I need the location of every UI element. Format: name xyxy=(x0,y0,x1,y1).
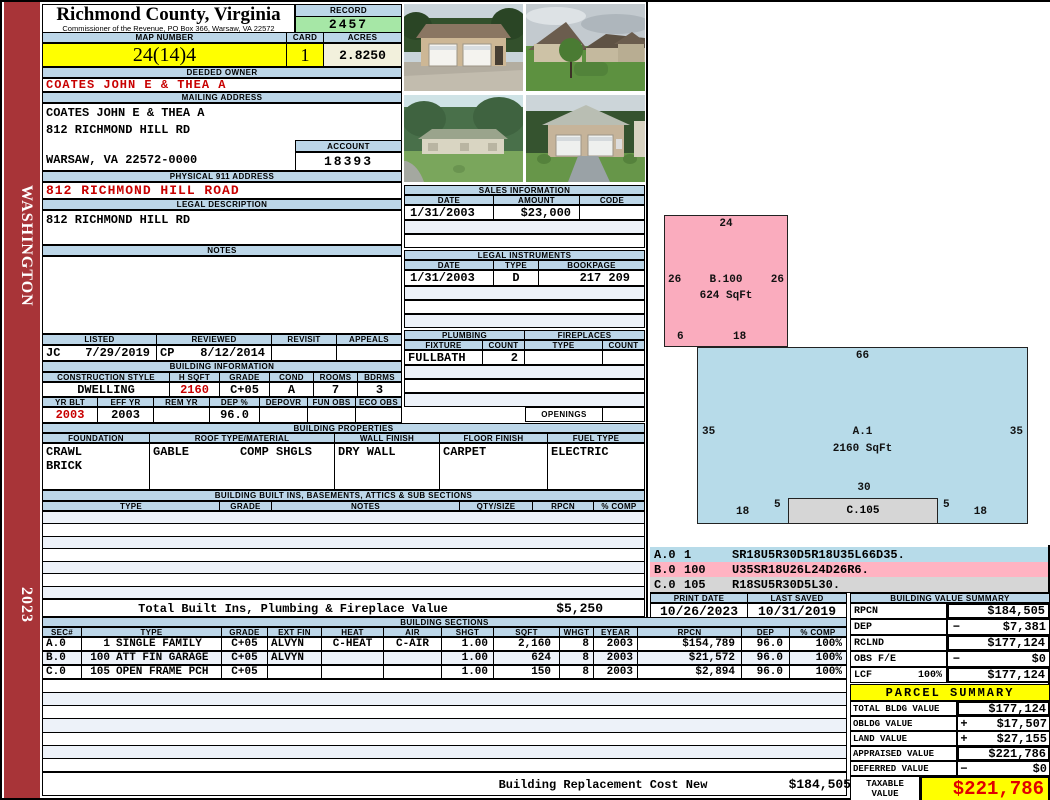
code-b-num: 100 xyxy=(684,563,732,577)
listed-date: 7/29/2019 xyxy=(85,346,150,360)
code-a-sec: A.0 xyxy=(650,548,684,562)
deeded-owner-value: COATES JOHN E & THEA A xyxy=(42,78,402,92)
total-bldg-label: TOTAL BLDG VALUE xyxy=(850,701,957,716)
fireplaces-label: FIREPLACES xyxy=(525,330,645,340)
code-b-sec: B.0 xyxy=(650,563,684,577)
row-c-rpcn: $2,894 xyxy=(638,665,742,679)
deferred-sign: − xyxy=(958,762,970,776)
construction-style-value: DWELLING xyxy=(42,382,170,397)
sketch-a-dim-inner: 30 xyxy=(789,482,939,494)
code-c-sec: C.0 xyxy=(650,578,684,592)
section-row-a: A.0 1SINGLE FAMILY C+05 ALVYN C-HEAT C-A… xyxy=(42,637,847,651)
bvs-dep-label: DEP xyxy=(850,619,947,635)
deferred-label: DEFERRED VALUE xyxy=(850,761,957,776)
wall-finish-value: DRY WALL xyxy=(335,443,440,490)
li-date-label: DATE xyxy=(404,260,494,270)
openings-label: OPENINGS xyxy=(525,407,603,422)
sale-amount: $23,000 xyxy=(494,205,580,220)
row-c-whgt: 8 xyxy=(560,665,594,679)
obldg-sign: + xyxy=(958,717,970,731)
sketch-b-dim-bc: 18 xyxy=(733,331,746,343)
roof-material-value: COMP SHGLS xyxy=(240,445,312,459)
deeded-owner-label: DEEDED OWNER xyxy=(42,67,402,78)
built-ins-empty-rows xyxy=(42,511,645,599)
row-b-whgt: 8 xyxy=(560,651,594,665)
whgt-col-label: WHGT xyxy=(560,627,594,637)
row-b-type: 100ATT FIN GARAGE xyxy=(82,651,222,665)
fp-type-value xyxy=(525,350,603,365)
bvs-dep-value: $7,381 xyxy=(1003,620,1049,634)
total-bldg-value: $177,124 xyxy=(988,702,1048,716)
built-ins-total-label: Total Built Ins, Plumbing & Fireplace Va… xyxy=(43,602,543,616)
map-number-label: MAP NUMBER xyxy=(42,32,287,43)
appeals-label: APPEALS xyxy=(337,334,402,345)
row-b-air xyxy=(384,651,442,665)
bvs-lcf-pct: 100% xyxy=(918,670,942,681)
row-a-type: 1SINGLE FAMILY xyxy=(82,637,222,651)
listed-by: JC xyxy=(46,346,60,360)
code-a-vector: SR18U5R30D5R18U35L66D35. xyxy=(732,548,905,562)
grade-label: GRADE xyxy=(220,372,270,382)
sketch-a-dim-pl: 5 xyxy=(774,499,781,511)
roof-type-value: GABLE xyxy=(153,445,189,459)
parcel-summary-title: PARCEL SUMMARY xyxy=(850,684,1050,701)
row-a-dep: 96.0 xyxy=(742,637,790,651)
sketch-b-dim-bl: 6 xyxy=(677,331,684,343)
mail-line-3: WARSAW, VA 22572-0000 xyxy=(46,153,197,167)
sqft-col-label: SQFT xyxy=(494,627,560,637)
taxable-value-cell: $221,786 xyxy=(920,776,1050,800)
sketch-a-dim-br: 18 xyxy=(974,506,987,518)
bi-qty-label: QTY/SIZE xyxy=(460,501,533,511)
sale-code xyxy=(580,205,645,220)
listed-label: LISTED xyxy=(42,334,157,345)
bdrms-label: BDRMS xyxy=(358,372,402,382)
sales-empty-row xyxy=(404,234,645,248)
card-label: CARD xyxy=(287,32,324,43)
legal-description-box: 812 RICHMOND HILL RD xyxy=(42,210,402,245)
row-b-shgt: 1.00 xyxy=(442,651,494,665)
obldg-value-cell: + $17,507 xyxy=(957,716,1050,731)
deferred-value: $0 xyxy=(1033,762,1049,776)
record-value: 2457 xyxy=(295,16,402,33)
code-a-num: 1 xyxy=(684,548,732,562)
notes-label: NOTES xyxy=(42,245,402,256)
land-value: $27,155 xyxy=(997,732,1049,746)
listed-value: JC7/29/2019 xyxy=(42,345,157,361)
row-c-heat xyxy=(322,665,384,679)
row-a-sqft: 2,160 xyxy=(494,637,560,651)
bi-type-label: TYPE xyxy=(42,501,220,511)
bvs-rclnd-value: $177,124 xyxy=(987,636,1048,650)
fp-count-label: COUNT xyxy=(603,340,645,350)
sales-date-label: DATE xyxy=(404,195,494,205)
sketch-a-dim-pr: 5 xyxy=(943,499,950,511)
sketch-b-sqft: 624 SqFt xyxy=(665,290,787,302)
account-value: 18393 xyxy=(295,152,402,171)
deferred-value-cell: − $0 xyxy=(957,761,1050,776)
rooms-value: 7 xyxy=(314,382,358,397)
revisit-value xyxy=(272,345,337,361)
appraised-value-cell: $221,786 xyxy=(957,746,1050,761)
county-title: Richmond County, Virginia xyxy=(43,5,294,24)
print-date-label: PRINT DATE xyxy=(650,593,748,603)
replacement-cost-value: $184,505 xyxy=(723,777,851,792)
deppct-value: 96.0 xyxy=(210,407,260,423)
remyr-label: REM YR xyxy=(154,397,210,407)
row-a-heat: C-HEAT xyxy=(322,637,384,651)
row-b-eyear: 2003 xyxy=(594,651,638,665)
revisit-label: REVISIT xyxy=(272,334,337,345)
bvs-obs-sign: − xyxy=(948,652,965,666)
row-b-ext: ALVYN xyxy=(268,651,322,665)
row-b-rpcn: $21,572 xyxy=(638,651,742,665)
bvs-rclnd-label: RCLND xyxy=(850,635,947,651)
effyr-label: EFF YR xyxy=(98,397,154,407)
bvs-rpcn-value-cell: $184,505 xyxy=(947,603,1050,619)
building-properties-label: BUILDING PROPERTIES xyxy=(42,423,645,433)
li-bookpage: 217 209 xyxy=(539,270,645,286)
reviewed-value: CP8/12/2014 xyxy=(157,345,272,361)
bvs-dep-sign: − xyxy=(948,620,965,634)
physical-address-label: PHYSICAL 911 ADDRESS xyxy=(42,171,402,182)
bvs-lcf-value: $177,124 xyxy=(987,668,1048,682)
bvs-obs-label: OBS F/E xyxy=(850,651,947,667)
reviewed-by: CP xyxy=(160,346,174,360)
fuel-type-label: FUEL TYPE xyxy=(548,433,645,443)
sketch-code-row-a: A.0 1 SR18U5R30D5R18U35L66D35. xyxy=(650,547,1048,562)
bi-rpcn-label: RPCN xyxy=(533,501,594,511)
fixture-value: FULLBATH xyxy=(404,350,483,365)
foundation-label: FOUNDATION xyxy=(42,433,150,443)
sec-col-label: SEC# xyxy=(42,627,82,637)
cond-value: A xyxy=(270,382,314,397)
row-a-shgt: 1.00 xyxy=(442,637,494,651)
sketch-a-name: A.1 xyxy=(698,426,1027,438)
reviewed-date: 8/12/2014 xyxy=(200,346,265,360)
bvs-obs-value-cell: − $0 xyxy=(947,651,1050,667)
row-a-grade: C+05 xyxy=(222,637,268,651)
row-c-eyear: 2003 xyxy=(594,665,638,679)
bi-notes-label: NOTES xyxy=(272,501,460,511)
county-title-block: Richmond County, Virginia Commissioner o… xyxy=(42,4,295,33)
sidebar-year-label: 2023 xyxy=(11,587,35,623)
appraised-label: APPRAISED VALUE xyxy=(850,746,957,761)
mail-line-2: 812 RICHMOND HILL RD xyxy=(46,123,190,137)
sections-empty-rows xyxy=(42,679,847,772)
row-b-dep: 96.0 xyxy=(742,651,790,665)
row-c-grade: C+05 xyxy=(222,665,268,679)
depovr-value xyxy=(260,407,308,423)
code-c-num: 105 xyxy=(684,578,732,592)
fuel-type-value: ELECTRIC xyxy=(548,443,645,490)
rooms-label: ROOMS xyxy=(314,372,358,382)
section-row-b: B.0 100ATT FIN GARAGE C+05 ALVYN 1.00 62… xyxy=(42,651,847,665)
fixture-count-label: COUNT xyxy=(483,340,525,350)
appeals-value xyxy=(337,345,402,361)
row-c-comp: 100% xyxy=(790,665,847,679)
row-a-eyear: 2003 xyxy=(594,637,638,651)
photo-grid xyxy=(404,4,645,182)
acres-value: 2.8250 xyxy=(324,43,402,67)
grade-value: C+05 xyxy=(220,382,270,397)
bvs-lcf-value-cell: $177,124 xyxy=(947,667,1050,683)
hsqft-value: 2160 xyxy=(170,382,220,397)
section-row-c: C.0 105OPEN FRAME PCH C+05 1.00 150 8 20… xyxy=(42,665,847,679)
rpcn-col-label: RPCN xyxy=(638,627,742,637)
yrblt-value: 2003 xyxy=(42,407,98,423)
construction-style-label: CONSTRUCTION STYLE xyxy=(42,372,170,382)
funobs-label: FUN OBS xyxy=(308,397,356,407)
sketch-area: 24 26 26 B.100 624 SqFt 6 18 66 35 35 A.… xyxy=(650,2,1050,545)
legal-instruments-label: LEGAL INSTRUMENTS xyxy=(404,250,645,260)
sales-amount-label: AMOUNT xyxy=(494,195,580,205)
replacement-cost-label: Building Replacement Cost New xyxy=(463,778,743,792)
plumbing-empty-row xyxy=(404,393,645,407)
sketch-codes: A.0 1 SR18U5R30D5R18U35L66D35. B.0 100 U… xyxy=(650,547,1048,593)
bvs-obs-value: $0 xyxy=(1032,652,1049,666)
bvs-rpcn-value: $184,505 xyxy=(987,604,1048,618)
photo-ranch-house xyxy=(404,95,523,182)
comp-col-label: % COMP xyxy=(790,627,847,637)
fp-type-label: TYPE xyxy=(525,340,603,350)
extfin-col-label: EXT FIN xyxy=(268,627,322,637)
land-label: LAND VALUE xyxy=(850,731,957,746)
photo-house-front xyxy=(526,4,645,91)
li-type: D xyxy=(494,270,539,286)
notes-box xyxy=(42,256,402,334)
sketch-code-row-c: C.0 105 R18SU5R30D5L30. xyxy=(650,577,1048,592)
built-ins-total-row: Total Built Ins, Plumbing & Fireplace Va… xyxy=(42,599,645,617)
sales-information-label: SALES INFORMATION xyxy=(404,185,645,195)
row-c-sqft: 150 xyxy=(494,665,560,679)
mailing-address-label: MAILING ADDRESS xyxy=(42,92,402,103)
map-number-value: 24(14)4 xyxy=(42,43,287,67)
obldg-label: OBLDG VALUE xyxy=(850,716,957,731)
depovr-label: DEPOVR xyxy=(260,397,308,407)
land-value-cell: + $27,155 xyxy=(957,731,1050,746)
taxable-value: $221,786 xyxy=(953,778,1048,800)
appraised-value: $221,786 xyxy=(988,747,1048,761)
parcel-summary: PARCEL SUMMARY TOTAL BLDG VALUE $177,124… xyxy=(850,684,1050,800)
column-divider xyxy=(646,2,648,617)
building-information-label: BUILDING INFORMATION xyxy=(42,361,402,372)
effyr-value: 2003 xyxy=(98,407,154,423)
bvs-rpcn-label: RPCN xyxy=(850,603,947,619)
sale-date: 1/31/2003 xyxy=(404,205,494,220)
funobs-value xyxy=(308,407,356,423)
row-b-grade: C+05 xyxy=(222,651,268,665)
sketch-b-name: B.100 xyxy=(665,274,787,286)
legal-description-value: 812 RICHMOND HILL RD xyxy=(46,213,190,227)
openings-value xyxy=(603,407,645,422)
bvs-dep-value-cell: − $7,381 xyxy=(947,619,1050,635)
photo-detached-garage xyxy=(404,4,523,91)
sketch-code-row-b: B.0 100 U35SR18U26L24D26R6. xyxy=(650,562,1048,577)
foundation-value: CRAWLBRICK xyxy=(42,443,150,490)
roof-value: GABLE COMP SHGLS xyxy=(150,443,335,490)
reviewed-label: REVIEWED xyxy=(157,334,272,345)
ecoobs-label: ECO OBS xyxy=(356,397,402,407)
li-empty-row xyxy=(404,300,645,314)
total-bldg-value-cell: $177,124 xyxy=(957,701,1050,716)
row-c-air xyxy=(384,665,442,679)
row-b-sec: B.0 xyxy=(42,651,82,665)
sketch-section-a: 66 35 35 A.1 2160 SqFt 30 18 5 5 18 C.10… xyxy=(697,347,1028,524)
roof-label: ROOF TYPE/MATERIAL xyxy=(150,433,335,443)
bdrms-value: 3 xyxy=(358,382,402,397)
sales-code-label: CODE xyxy=(580,195,645,205)
building-sections-label: BUILDING SECTIONS xyxy=(42,617,847,627)
year-sidebar: WASHINGTON 2023 xyxy=(4,2,40,798)
sketch-a-dim-top: 66 xyxy=(698,350,1027,362)
bvs-rclnd-value-cell: $177,124 xyxy=(947,635,1050,651)
eyear-col-label: EYEAR xyxy=(594,627,638,637)
property-record-card: WASHINGTON 2023 Richmond County, Virgini… xyxy=(0,0,1050,800)
plumbing-empty-row xyxy=(404,379,645,393)
bi-grade-label: GRADE xyxy=(220,501,272,511)
acres-label: ACRES xyxy=(324,32,402,43)
row-c-dep: 96.0 xyxy=(742,665,790,679)
li-date: 1/31/2003 xyxy=(404,270,494,286)
deppct-label: DEP % xyxy=(210,397,260,407)
sketch-b-dim-top: 24 xyxy=(665,218,787,230)
sketch-a-sqft: 2160 SqFt xyxy=(698,443,1027,455)
photo-garage-driveway xyxy=(526,95,645,182)
mail-line-1: COATES JOHN E & THEA A xyxy=(46,106,204,120)
fixture-label: FIXTURE xyxy=(404,340,483,350)
row-c-ext xyxy=(268,665,322,679)
obldg-value: $17,507 xyxy=(997,717,1049,731)
building-value-summary-label: BUILDING VALUE SUMMARY xyxy=(850,593,1050,603)
row-c-shgt: 1.00 xyxy=(442,665,494,679)
floor-finish-value: CARPET xyxy=(440,443,548,490)
code-c-vector: R18SU5R30D5L30. xyxy=(732,578,840,592)
row-c-type: 105OPEN FRAME PCH xyxy=(82,665,222,679)
built-ins-label: BUILDING BUILT INS, BASEMENTS, ATTICS & … xyxy=(42,490,645,501)
ecoobs-value xyxy=(356,407,402,423)
wall-finish-label: WALL FINISH xyxy=(335,433,440,443)
fixture-count: 2 xyxy=(483,350,525,365)
sketch-section-b: 24 26 26 B.100 624 SqFt 6 18 xyxy=(664,215,788,347)
li-empty-row xyxy=(404,286,645,300)
type-col-label: TYPE xyxy=(82,627,222,637)
shgt-col-label: SHGT xyxy=(442,627,494,637)
replacement-cost-row: Building Replacement Cost New $184,505 xyxy=(42,772,847,796)
taxable-label: TAXABLEVALUE xyxy=(850,776,920,800)
sketch-c-name: C.105 xyxy=(846,505,879,517)
grade-col-label: GRADE xyxy=(222,627,268,637)
air-col-label: AIR xyxy=(384,627,442,637)
bvs-lcf-label: LCF100% xyxy=(850,667,947,683)
cond-label: COND xyxy=(270,372,314,382)
built-ins-total-value: $5,250 xyxy=(513,601,603,616)
sales-empty-row xyxy=(404,220,645,234)
yrblt-label: YR BLT xyxy=(42,397,98,407)
plumbing-label: PLUMBING xyxy=(404,330,525,340)
hsqft-label: H SQFT xyxy=(170,372,220,382)
row-a-sec: A.0 xyxy=(42,637,82,651)
code-b-vector: U35SR18U26L24D26R6. xyxy=(732,563,869,577)
land-sign: + xyxy=(958,732,970,746)
row-a-comp: 100% xyxy=(790,637,847,651)
row-a-whgt: 8 xyxy=(560,637,594,651)
row-a-rpcn: $154,789 xyxy=(638,637,742,651)
dep-col-label: DEP xyxy=(742,627,790,637)
row-a-ext: ALVYN xyxy=(268,637,322,651)
row-b-heat xyxy=(322,651,384,665)
li-empty-row xyxy=(404,314,645,328)
card-value: 1 xyxy=(287,43,324,67)
last-saved-label: LAST SAVED xyxy=(748,593,847,603)
sketch-section-c: C.105 xyxy=(788,498,938,524)
plumbing-empty-row xyxy=(404,365,645,379)
foundation-line2: BRICK xyxy=(46,459,82,473)
building-value-summary: RPCN $184,505 DEP − $7,381 RCLND $177,12… xyxy=(850,603,1050,683)
row-b-comp: 100% xyxy=(790,651,847,665)
physical-address-value: 812 RICHMOND HILL ROAD xyxy=(42,182,402,199)
foundation-line1: CRAWL xyxy=(46,445,82,459)
fp-count-value xyxy=(603,350,645,365)
sketch-a-dim-bl: 18 xyxy=(736,506,749,518)
sidebar-county-label: WASHINGTON xyxy=(11,185,35,307)
row-b-sqft: 624 xyxy=(494,651,560,665)
li-type-label: TYPE xyxy=(494,260,539,270)
floor-finish-label: FLOOR FINISH xyxy=(440,433,548,443)
legal-description-label: LEGAL DESCRIPTION xyxy=(42,199,402,210)
remyr-value xyxy=(154,407,210,423)
bi-comp-label: % COMP xyxy=(594,501,645,511)
row-c-sec: C.0 xyxy=(42,665,82,679)
account-label: ACCOUNT xyxy=(295,140,402,152)
li-bookpage-label: BOOKPAGE xyxy=(539,260,645,270)
row-a-air: C-AIR xyxy=(384,637,442,651)
heat-col-label: HEAT xyxy=(322,627,384,637)
